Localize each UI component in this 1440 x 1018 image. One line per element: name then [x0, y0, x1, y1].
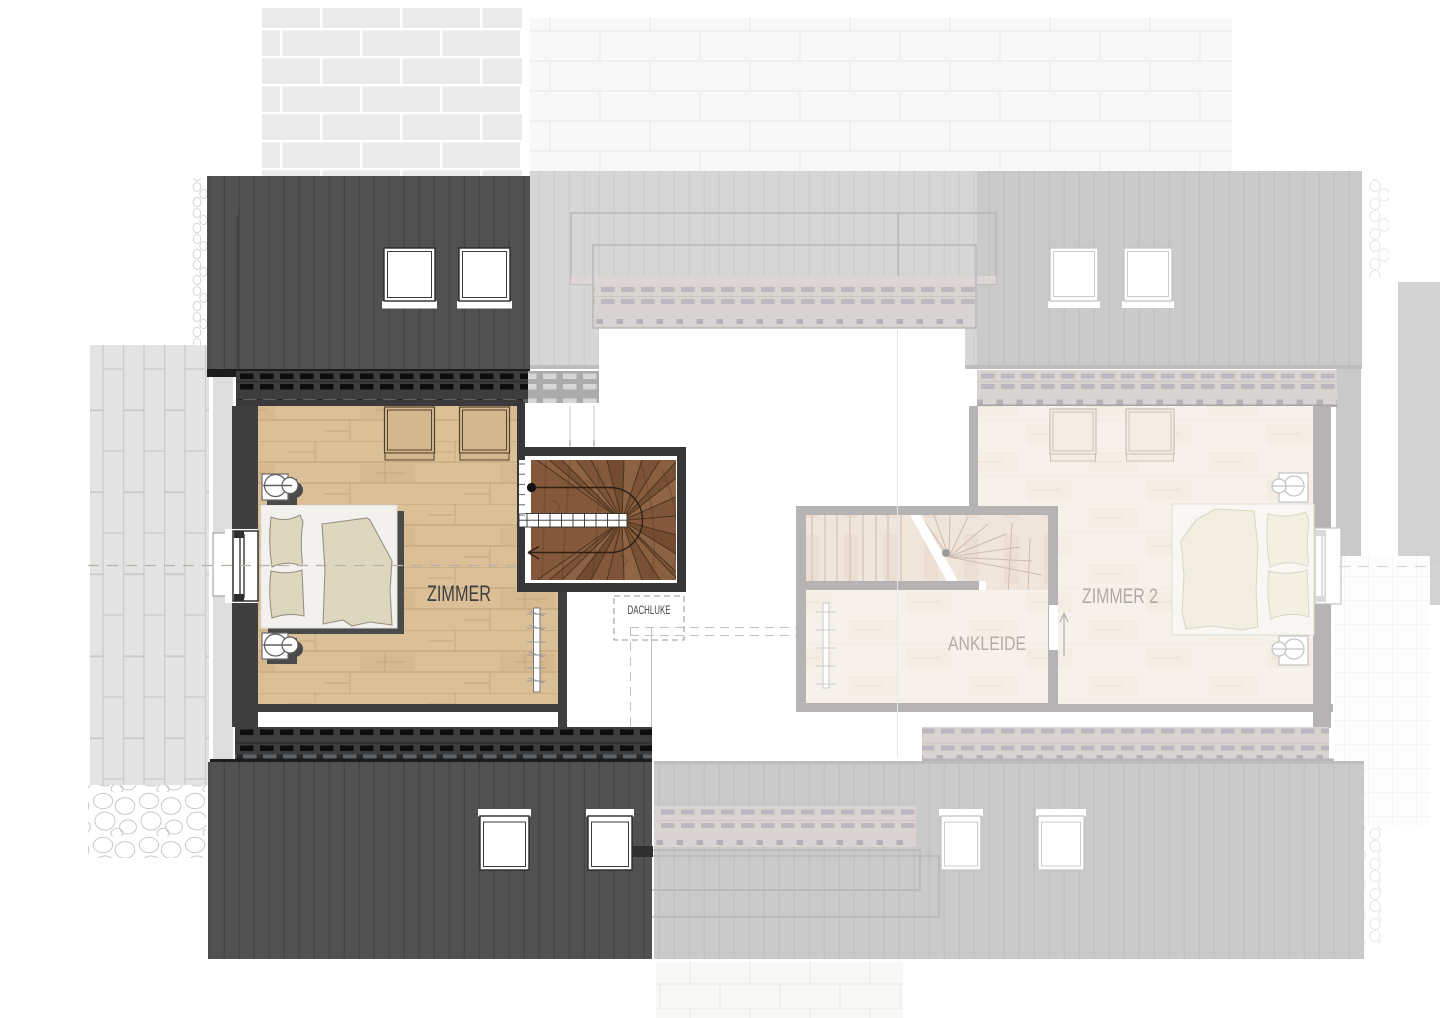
svg-text:DACHLUKE: DACHLUKE	[628, 603, 671, 617]
svg-text:ZIMMER: ZIMMER	[427, 581, 491, 606]
svg-text:ZIMMER 2: ZIMMER 2	[1082, 585, 1158, 608]
svg-text:ANKLEIDE: ANKLEIDE	[948, 634, 1026, 655]
